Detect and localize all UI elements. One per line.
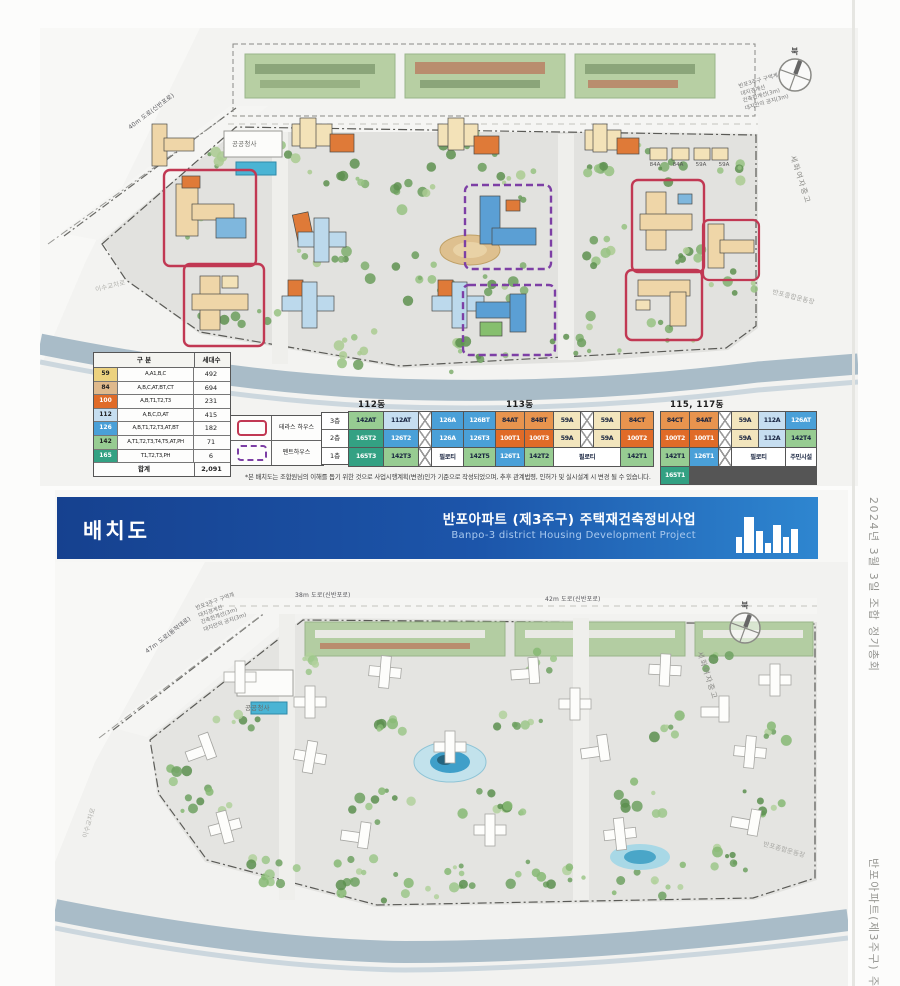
- core-gap-cell: [719, 448, 731, 465]
- public-building-label-bottom: 공공청사: [245, 702, 270, 712]
- unit-cell: 142T4: [786, 430, 816, 447]
- unit-cell: 165T3: [349, 448, 383, 465]
- project-name-block: 반포아파트 (제3주구) 주택재건축정비사업 Banpo-3 district …: [443, 508, 696, 541]
- unit-cell: 126T1: [690, 448, 718, 465]
- core-gap-cell: [419, 448, 431, 465]
- unit-cell: 주민시설: [786, 448, 816, 465]
- legend-row: 84A,B,C,AT,BT,CT694: [94, 382, 230, 396]
- legend-row: 59A,A1,B,C492: [94, 368, 230, 382]
- legend-swatch: 126: [94, 422, 118, 435]
- north-road-bottom: [205, 598, 817, 614]
- road-38-label: 38m 도로(신반포로): [295, 590, 351, 599]
- legend-swatch: 100: [94, 395, 118, 408]
- unit-cell: 100T1: [496, 430, 524, 447]
- legend-header-count: 세대수: [194, 353, 228, 367]
- legend-count: 182: [194, 422, 228, 435]
- unit-cell: 84BT: [525, 412, 553, 429]
- core-gap-cell: [419, 430, 431, 447]
- unit-cell: 165T2: [349, 430, 383, 447]
- legend-count: 694: [194, 382, 228, 395]
- legend-desc: A,T1,T2,T3,T4,T5,AT,PH: [118, 436, 194, 449]
- page-title: 배치도: [83, 515, 150, 545]
- legend-count: 6: [194, 450, 228, 463]
- unit-cell: 59A: [732, 430, 758, 447]
- legend-desc: A,B,C,D,AT: [118, 409, 194, 422]
- small-building-label: 84A: [647, 162, 663, 168]
- unit-cell: 126A: [432, 430, 463, 447]
- legend-row: 142A,T1,T2,T3,T4,T5,AT,PH71: [94, 436, 230, 450]
- unit-cell: 100T2: [621, 430, 653, 447]
- penthouse-legend-row: 펜트하우스: [231, 440, 323, 465]
- unit-cell: 59A: [594, 430, 620, 447]
- legend-desc: A,B,T1,T2,T3: [118, 395, 194, 408]
- legend-rows: 59A,A1,B,C49284A,B,C,AT,BT,CT694100A,B,T…: [94, 368, 230, 463]
- unit-cell: 112A: [759, 412, 785, 429]
- unit-cell: 142T2: [525, 448, 553, 465]
- unit-cell: 112AT: [384, 412, 418, 429]
- unit-cell: 142T5: [464, 448, 495, 465]
- table-title-112: 112동: [358, 398, 386, 410]
- legend-swatch: 165: [94, 450, 118, 463]
- core-gap-cell: [719, 412, 731, 429]
- legend-header-type: 구 분: [94, 353, 194, 367]
- unit-cell: 126BT: [464, 412, 495, 429]
- legend-row: 100A,B,T1,T2,T3231: [94, 395, 230, 409]
- booklet-edge-text-bottom: 반포아파트(제3주구) 주택재: [866, 858, 882, 986]
- unit-cell: 84AT: [690, 412, 718, 429]
- legend-swatch: 112: [94, 409, 118, 422]
- page-edge: [852, 0, 855, 986]
- project-name-korean: 반포아파트 (제3주구) 주택재건축정비사업: [443, 508, 696, 528]
- core-gap-cell: [419, 412, 431, 429]
- small-building-label: 84A: [670, 162, 686, 168]
- legend-swatch: 142: [94, 436, 118, 449]
- legend-count: 492: [194, 368, 228, 381]
- unit-cell: 112A: [759, 430, 785, 447]
- bottom-site-plan-sheet: 배치도 반포아파트 (제3주구) 주택재건축정비사업 Banpo-3 distr…: [55, 490, 848, 986]
- legend-swatch: 59: [94, 368, 118, 381]
- floor-label: 1층: [322, 448, 348, 464]
- internal-road-east: [558, 134, 574, 360]
- unit-cell: 142T3: [384, 448, 418, 465]
- unit-cell: 100T3: [525, 430, 553, 447]
- legend-row: 165T1,T2,T3,PH6: [94, 450, 230, 464]
- legend-count: 71: [194, 436, 228, 449]
- core-gap-cell: [719, 430, 731, 447]
- small-building-label: 59A: [693, 162, 709, 168]
- legend-row: 112A,B,C,D,AT415: [94, 409, 230, 423]
- penthouse-outline-box: [237, 445, 267, 461]
- unit-cell: 84CT: [661, 412, 689, 429]
- terrace-label: 테라스 하우스: [271, 416, 321, 440]
- legend-desc: A,A1,B,C: [118, 368, 194, 381]
- road-42-label: 42m 도로(신반포로): [545, 594, 601, 603]
- unit-cell: 142T1: [661, 448, 689, 465]
- core-gap-cell: [581, 430, 593, 447]
- penthouse-label: 펜트하우스: [271, 441, 321, 465]
- unit-cell: 126T2: [384, 430, 418, 447]
- small-building-labels: 84A84A59A59A: [647, 162, 732, 168]
- building-skyline-icon: [736, 507, 808, 553]
- legend-total-count: 2,091: [194, 463, 228, 476]
- unit-cell: 142AT: [349, 412, 383, 429]
- unit-table-113: 84AT84BT59A59A84CT100T1100T359A59A100T21…: [495, 411, 654, 467]
- unit-cell: 126AT: [786, 412, 816, 429]
- booklet-edge-text-top: 2024년 3월 3일 조합 정기총회: [866, 497, 882, 673]
- core-gap-cell: [581, 412, 593, 429]
- terrace-outline-box: [237, 420, 267, 436]
- banner: 배치도 반포아파트 (제3주구) 주택재건축정비사업 Banpo-3 distr…: [57, 497, 818, 559]
- unit-cell: 84CT: [621, 412, 653, 429]
- unit-cell: 59A: [554, 412, 580, 429]
- project-name-english: Banpo-3 district Housing Development Pro…: [443, 530, 696, 541]
- compass-north-label-bottom: 북: [741, 600, 749, 611]
- outline-legend: 테라스 하우스 펜트하우스: [230, 415, 324, 466]
- unit-cell: 59A: [594, 412, 620, 429]
- unit-cell: 126T1: [496, 448, 524, 465]
- unit-cell: 필로티: [554, 448, 620, 465]
- legend-desc: T1,T2,T3,PH: [118, 450, 194, 463]
- unit-cell: 59A: [732, 412, 758, 429]
- legend-count: 415: [194, 409, 228, 422]
- floor-label: 2층: [322, 430, 348, 447]
- internal-road-west-bottom: [279, 614, 295, 900]
- unit-table-112: 142AT112AT126A126BT165T2126T2126A126T316…: [348, 411, 496, 467]
- internal-road-east-bottom: [573, 618, 589, 900]
- legend-total-row: 합계 2,091: [94, 463, 230, 476]
- legend-desc: A,B,C,AT,BT,CT: [118, 382, 194, 395]
- unit-cell: 142T1: [621, 448, 653, 465]
- photographed-booklet-page: 공공청사 40m 도로(신반포로) 세화여자중고 이수교차로 반포종합운동장 북…: [0, 0, 900, 986]
- legend-swatch: 84: [94, 382, 118, 395]
- unit-cell: 84AT: [496, 412, 524, 429]
- legend-desc: A,B,T1,T2,T3,AT,BT: [118, 422, 194, 435]
- top-site-plan-sheet: 공공청사 40m 도로(신반포로) 세화여자중고 이수교차로 반포종합운동장 북…: [40, 28, 858, 486]
- terrace-legend-row: 테라스 하우스: [231, 416, 323, 440]
- unit-cell: 59A: [554, 430, 580, 447]
- floor-label: 3층: [322, 413, 348, 430]
- compass-north-label: 북: [791, 46, 799, 57]
- unit-cell: 필로티: [732, 448, 785, 465]
- legend-row: 126A,B,T1,T2,T3,AT,BT182: [94, 422, 230, 436]
- legend-count: 231: [194, 395, 228, 408]
- table-title-115-117: 115, 117동: [670, 398, 724, 410]
- unit-cell: 126A: [432, 412, 463, 429]
- public-building-label: 공공청사: [232, 138, 257, 148]
- small-building-label: 59A: [716, 162, 732, 168]
- legend-total-label: 합계: [94, 463, 194, 476]
- unit-cell: 100T2: [661, 430, 689, 447]
- floor-labels: 3층2층1층: [321, 412, 349, 465]
- unit-type-legend-table: 구 분 세대수 59A,A1,B,C49284A,B,C,AT,BT,CT694…: [93, 352, 231, 477]
- table-title-113: 113동: [506, 398, 534, 410]
- unit-cell: 필로티: [432, 448, 463, 465]
- unit-cell: 100T1: [690, 430, 718, 447]
- footnote: *본 배치도는 조합원님의 이해를 돕기 위한 것으로 사업시행계획(변경)인가…: [245, 472, 857, 481]
- legend-header: 구 분 세대수: [94, 353, 230, 368]
- unit-cell: 126T3: [464, 430, 495, 447]
